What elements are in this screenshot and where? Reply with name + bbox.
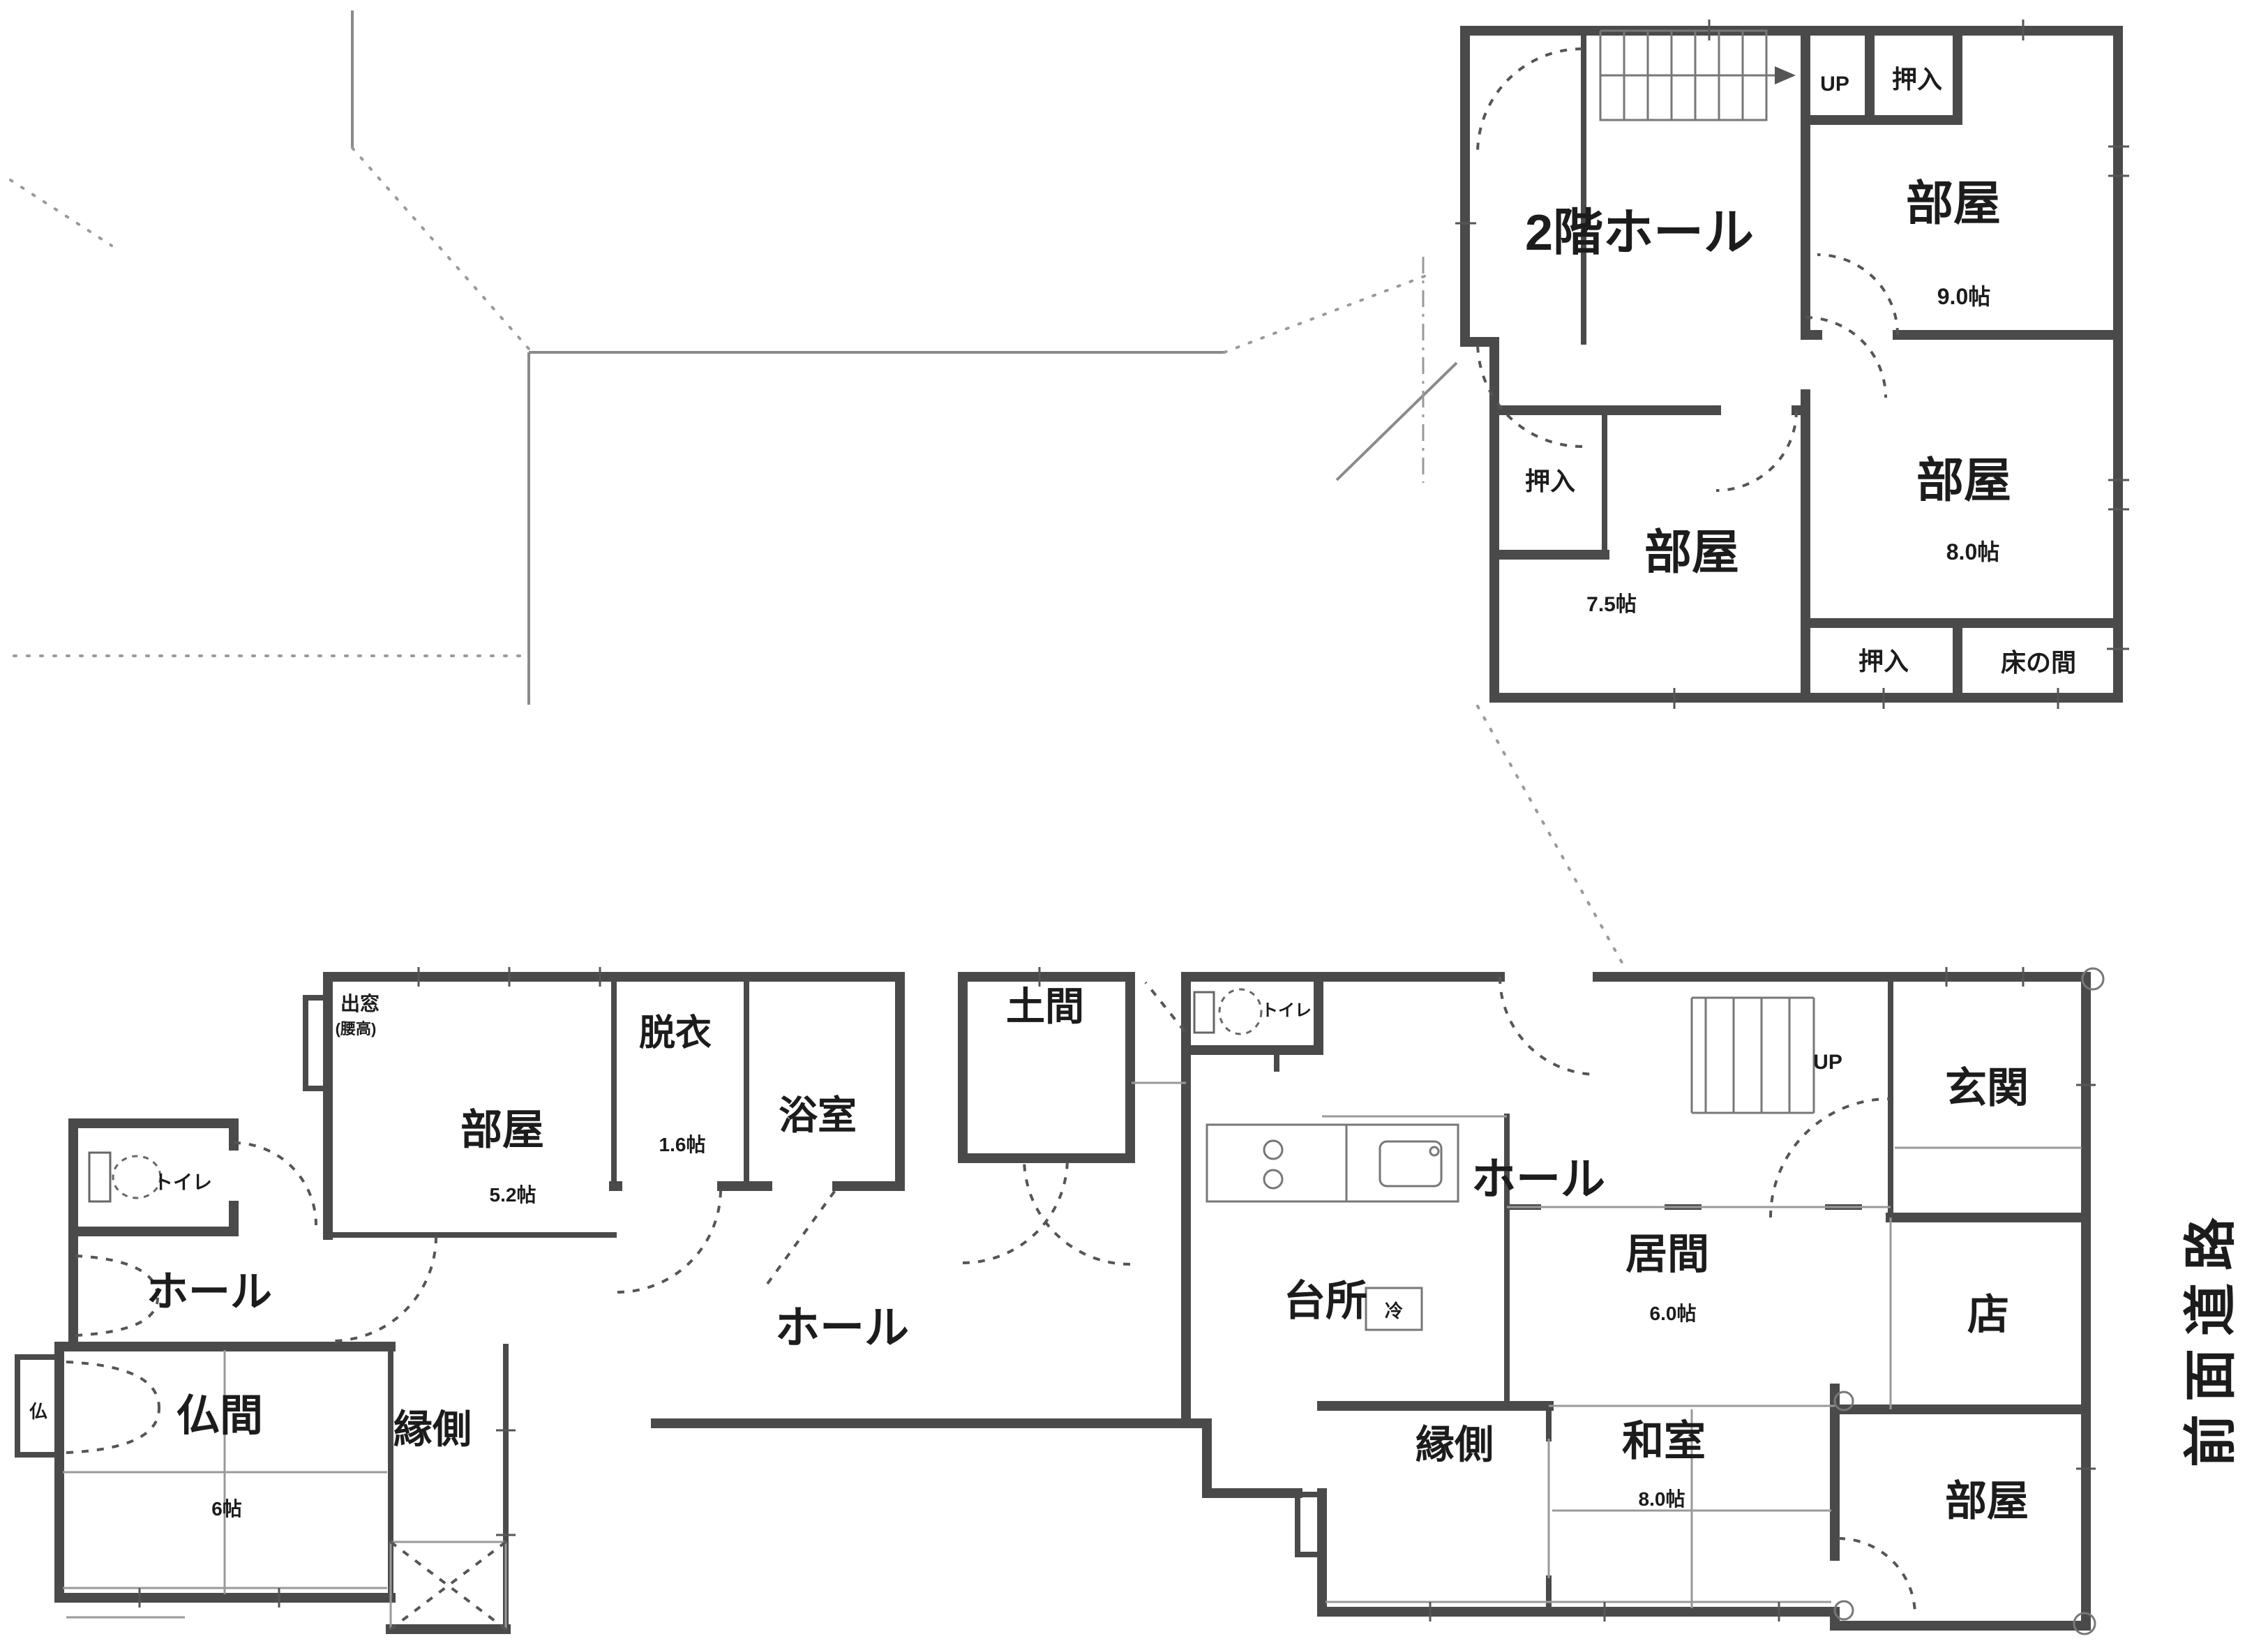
room-label-2f-hall: 2階ホール: [1525, 205, 1754, 261]
site-solid-lines: [352, 10, 1457, 705]
room-size-2f-ne: 9.0帖: [1937, 284, 1991, 309]
toilet-label-left: トイレ: [153, 1171, 212, 1193]
engawa-label-right: 縁側: [1415, 1423, 1494, 1467]
bathroom-label: 浴室: [779, 1093, 857, 1137]
fridge-label: 冷: [1385, 1301, 1403, 1321]
dressing-room-size: 1.6帖: [659, 1134, 706, 1155]
tokonoma-label: 床の間: [2001, 648, 2076, 677]
floorplan-document: 2階ホール UP 押入 部屋 9.0帖 部屋 8.0帖 押入 部屋 7.5帖 押…: [0, 0, 2268, 1648]
bay-window-note: (腰高): [336, 1020, 377, 1038]
stairs-up-label-1f: UP: [1813, 1051, 1842, 1074]
kitchen-label: 台所: [1284, 1278, 1367, 1324]
room-size-2f-e: 8.0帖: [1946, 539, 2000, 564]
butsudan-label: 仏: [29, 1401, 47, 1422]
stairs-1f: [1692, 998, 1814, 1113]
engawa-label-left: 縁側: [393, 1407, 472, 1451]
floor1-walls: [59, 977, 2086, 1629]
kitchen-counter-icon: [1207, 1125, 1458, 1201]
floor2-walls: [1465, 31, 2118, 698]
room-size-2f-sw: 7.5帖: [1586, 593, 1637, 616]
site-boundary-lines: [10, 10, 1627, 971]
stairs-up-label-2f: UP: [1820, 73, 1849, 96]
floor1-plan: 出窓 (腰高) 部屋 5.2帖 脱衣 1.6帖 浴室 土間 トイレ トイレ ホー…: [17, 967, 2103, 1634]
entrance-label: 玄関: [1945, 1065, 2029, 1111]
closet-label-2f-top: 押入: [1892, 65, 1942, 93]
room-label-2f-e: 部屋: [1916, 454, 2011, 507]
floor1-partitions: [17, 977, 1891, 1629]
hall-label-left: ホール: [147, 1268, 272, 1315]
floor2-door-swing-arcs: [1478, 49, 1898, 490]
front-road-label: 前面道路: [2181, 1205, 2241, 1467]
dressing-room-label: 脱衣: [639, 1013, 712, 1054]
toilet-icon-left: [89, 1153, 160, 1201]
room-label-2f-ne: 部屋: [1906, 177, 2001, 230]
washitsu-label: 和室: [1622, 1418, 1706, 1465]
living-room-label: 居間: [1625, 1231, 1709, 1278]
floor1-door-swing-arcs: [66, 977, 1915, 1629]
site-dotted-lines: [10, 148, 1627, 971]
toilet-icon-middle: [1194, 989, 1261, 1034]
bay-window-label: 出窓: [340, 992, 380, 1014]
butsuma-size: 6帖: [211, 1498, 242, 1520]
shop-label: 店: [1967, 1291, 2009, 1338]
doma-label: 土間: [1006, 984, 1084, 1028]
floor1-window-ticks: [140, 967, 2096, 1621]
butsuma-label: 仏間: [177, 1392, 263, 1440]
hall-label-right: ホール: [1471, 1154, 1605, 1204]
floor2-plan: 2階ホール UP 押入 部屋 9.0帖 部屋 8.0帖 押入 部屋 7.5帖 押…: [1455, 20, 2129, 709]
stairs-up-arrow-icon: [1775, 66, 1796, 84]
room-label-1f-nw: 部屋: [460, 1107, 544, 1153]
floor2-window-ticks: [1455, 20, 2129, 709]
room-label-1f-se: 部屋: [1945, 1478, 2029, 1525]
room-size-1f-nw: 5.2帖: [490, 1184, 536, 1206]
room-label-2f-sw: 部屋: [1644, 526, 1739, 579]
closet-label-2f-south: 押入: [1858, 647, 1909, 675]
stairs-2f: [1600, 31, 1796, 120]
closet-label-2f-west: 押入: [1525, 467, 1575, 495]
toilet-label-middle: トイレ: [1261, 1001, 1312, 1020]
washitsu-size: 8.0帖: [1639, 1488, 1685, 1510]
hall-label-center: ホール: [775, 1303, 909, 1353]
floorplan-canvas: 2階ホール UP 押入 部屋 9.0帖 部屋 8.0帖 押入 部屋 7.5帖 押…: [0, 0, 2268, 1648]
living-room-size: 6.0帖: [1650, 1303, 1697, 1324]
floor1-thin-lines: [63, 1083, 2082, 1629]
